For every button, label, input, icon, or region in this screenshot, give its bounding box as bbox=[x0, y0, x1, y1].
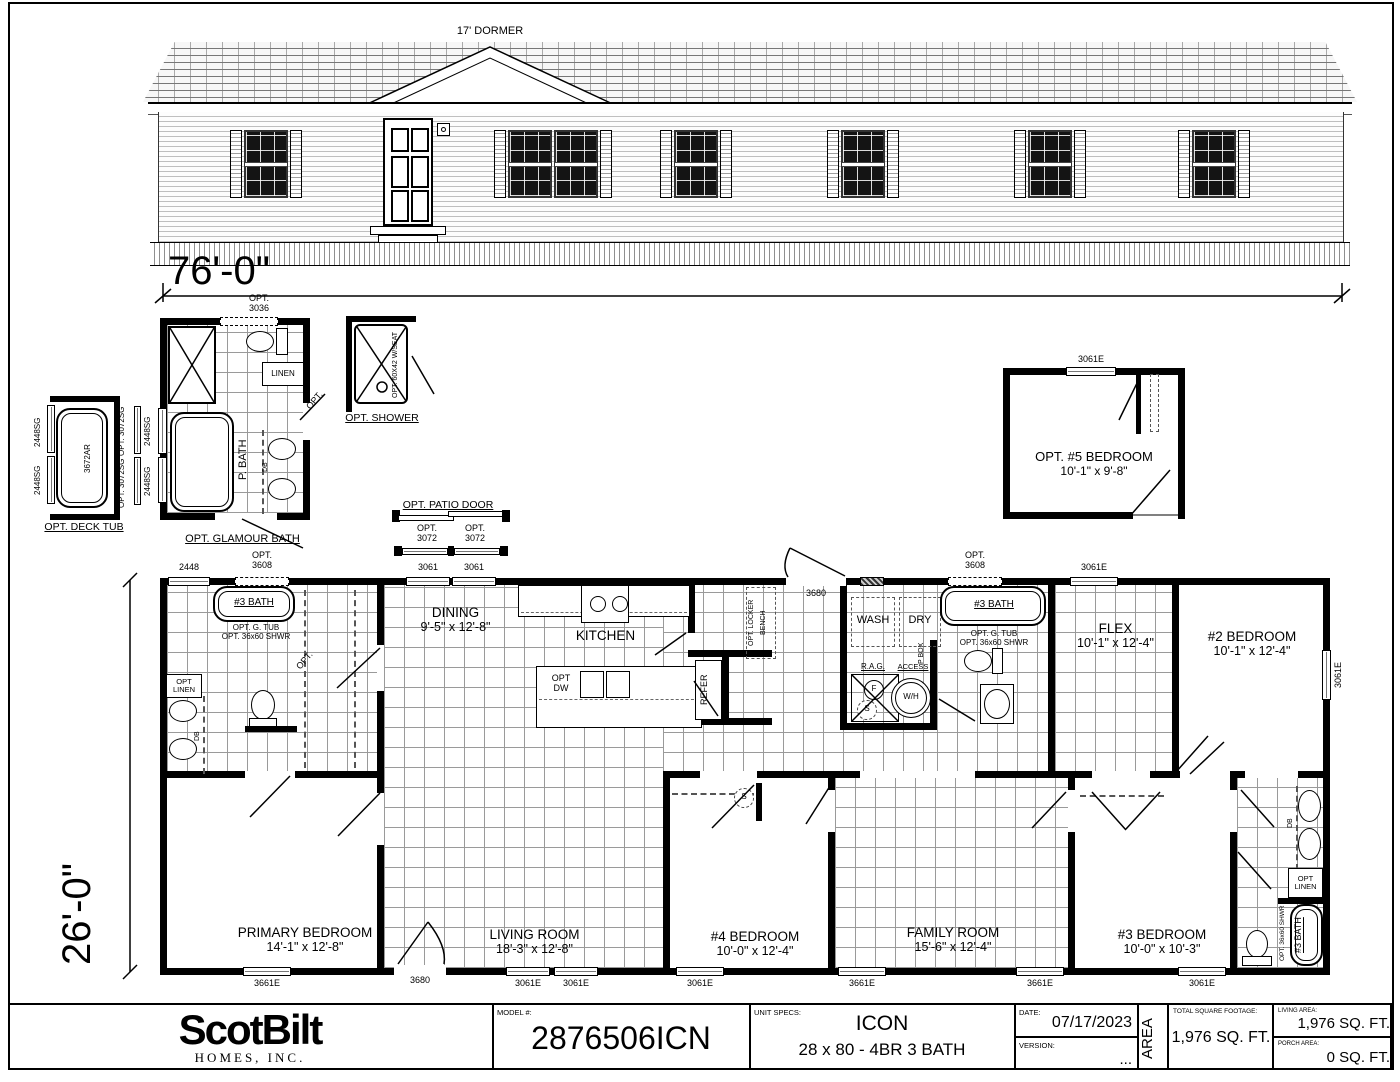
tub-option: OPT. 36x60 SHWR bbox=[206, 633, 306, 642]
width-dimension: 76'-0" bbox=[168, 250, 348, 293]
room-label: P. BATH bbox=[238, 428, 254, 492]
window-symbol bbox=[1322, 650, 1331, 700]
window-tag: 3061E bbox=[678, 979, 722, 989]
elevation-window bbox=[674, 130, 718, 198]
window-tag: 2448SG bbox=[144, 408, 156, 454]
specs-line1: ICON bbox=[752, 1013, 1012, 1036]
window-symbol bbox=[158, 457, 167, 503]
elevation-window bbox=[1028, 130, 1072, 198]
access-label: ACCESS bbox=[890, 663, 936, 671]
window-tag: 3661E bbox=[1018, 979, 1062, 989]
shutter bbox=[827, 130, 839, 198]
drawing-sheet: 17' DORMER 76'-0" 26'-0" bbox=[0, 0, 1400, 1082]
model-label: MODEL #: bbox=[497, 1008, 532, 1017]
door-tag: 3680 bbox=[396, 976, 444, 986]
window-tag: 3661E bbox=[840, 979, 884, 989]
double-bowl-tag: DB bbox=[1287, 812, 1296, 834]
room-label-kitchen: KITCHEN bbox=[558, 629, 653, 644]
elevation-window bbox=[508, 130, 552, 198]
toilet-bowl bbox=[251, 690, 275, 720]
shower-note: OPT. 60X42 W/SEAT bbox=[392, 328, 410, 402]
window-symbol bbox=[402, 548, 448, 555]
porch-label: PORCH AREA: bbox=[1278, 1041, 1319, 1047]
toilet-tank bbox=[992, 648, 1003, 674]
burner bbox=[590, 596, 606, 612]
shutter bbox=[1238, 130, 1250, 198]
elevation-window bbox=[841, 130, 885, 198]
double-bowl-tag: DB bbox=[194, 726, 203, 746]
window-tag: OPT. 3608 bbox=[245, 551, 279, 570]
closet-louver-door bbox=[1150, 374, 1159, 432]
room-label-flex: FLEX 10'-1" x 12'-4" bbox=[1058, 622, 1173, 650]
shutter bbox=[887, 130, 899, 198]
brand-sub: HOMES, INC. bbox=[100, 1051, 400, 1065]
model-number: 2876506ICN bbox=[496, 1021, 746, 1056]
specs-line2: 28 x 80 - 4BR 3 BATH bbox=[752, 1041, 1012, 1059]
locker-label: OPT. LOCKER bbox=[748, 590, 760, 656]
patio-door-panel bbox=[398, 515, 454, 521]
door-step bbox=[370, 226, 446, 235]
window-symbol bbox=[452, 577, 496, 586]
date-value: 07/17/2023 bbox=[1018, 1014, 1132, 1031]
window-symbol bbox=[838, 967, 886, 976]
sheet-border-right bbox=[1392, 2, 1394, 1070]
sink bbox=[1298, 828, 1321, 860]
porch-light bbox=[437, 123, 450, 136]
bench-label: BENCH bbox=[760, 596, 772, 650]
window-tag: 3061E bbox=[548, 979, 604, 989]
sink bbox=[268, 438, 296, 460]
window-symbol bbox=[1178, 967, 1226, 976]
closet-shelf bbox=[1080, 795, 1164, 797]
depth-dimension: 26'-0" bbox=[56, 846, 104, 982]
shutter bbox=[230, 130, 242, 198]
room-label-bed3: #3 BEDROOM 10'-0" x 10'-3" bbox=[1096, 928, 1228, 956]
room-name: OPT. #5 BEDROOM bbox=[1018, 450, 1170, 464]
smoke-circle: S bbox=[857, 700, 877, 720]
opt-glamour-bath-label: OPT. GLAMOUR BATH bbox=[170, 534, 315, 546]
shutter bbox=[1074, 130, 1086, 198]
bath-name: #3 BATH bbox=[956, 600, 1032, 611]
washer: WASH bbox=[851, 597, 895, 647]
burner bbox=[612, 596, 628, 612]
linen-cabinet: LINEN bbox=[262, 362, 304, 386]
living-label: LIVING AREA: bbox=[1278, 1008, 1317, 1014]
window-tag: 2448SG bbox=[34, 458, 46, 502]
elevation-window bbox=[554, 130, 598, 198]
double-bowl-tag: DB bbox=[262, 458, 271, 476]
opt-window-symbol bbox=[948, 577, 1002, 586]
window-symbol bbox=[158, 408, 167, 454]
roof bbox=[143, 42, 1357, 102]
window-tag: 3061E bbox=[1334, 648, 1346, 702]
window-tag: OPT. 3072SG bbox=[118, 406, 131, 456]
entry-door-opening bbox=[786, 577, 846, 586]
window-symbol bbox=[47, 405, 55, 453]
closet-rod bbox=[354, 590, 356, 768]
room-label-living: LIVING ROOM 18'-3" x 12'-8" bbox=[452, 928, 617, 956]
window-tag: 3661E bbox=[245, 979, 289, 989]
window-symbol bbox=[454, 548, 500, 555]
toilet-bowl bbox=[246, 331, 274, 352]
room-label-bed4: #4 BEDROOM 10'-0" x 12'-4" bbox=[686, 930, 824, 958]
opt-window-symbol bbox=[220, 317, 278, 326]
living-value: 1,976 SQ. FT. bbox=[1276, 1016, 1390, 1032]
room-label-primary: PRIMARY BEDROOM 14'-1" x 12'-8" bbox=[195, 926, 415, 954]
dishwasher-label: OPT DW bbox=[544, 674, 578, 693]
window-tag: 2448SG bbox=[34, 410, 46, 454]
opt-patio-door-label: OPT. PATIO DOOR bbox=[400, 500, 496, 511]
window-tag: OPT. 3072 bbox=[408, 524, 446, 543]
toilet-tank bbox=[276, 328, 288, 355]
window-tag: OPT. 3608 bbox=[958, 551, 992, 570]
glamour-tub bbox=[170, 412, 234, 512]
shelf-circle: S bbox=[734, 788, 754, 808]
shower-option: OPT. 36x60 SHWR bbox=[1279, 900, 1289, 966]
area-label: AREA bbox=[1140, 1011, 1164, 1066]
closet-rod bbox=[304, 590, 306, 768]
window-symbol bbox=[1070, 577, 1118, 586]
room-label-dining: DINING 9'-5" x 12'-8" bbox=[398, 606, 513, 634]
patio-door-panel bbox=[448, 511, 504, 517]
window-tag: 2448 bbox=[160, 563, 218, 573]
opt-deck-tub-label: OPT. DECK TUB bbox=[34, 522, 134, 533]
front-door bbox=[383, 118, 433, 226]
bath-name: #3 BATH bbox=[1294, 906, 1320, 964]
window-tag: OPT. 3072 bbox=[456, 524, 494, 543]
furnace-circle: F bbox=[864, 680, 884, 700]
sink bbox=[169, 700, 197, 722]
room-label-family: FAMILY ROOM 15'-6" x 12'-4" bbox=[882, 926, 1024, 954]
toilet-bowl bbox=[964, 650, 992, 672]
window-symbol bbox=[406, 577, 450, 586]
deck-tub bbox=[56, 408, 108, 508]
window-tag: 2448SG bbox=[144, 458, 156, 504]
sheet-border-left bbox=[8, 2, 10, 1070]
refrigerator-label: REFER bbox=[700, 664, 716, 716]
window-symbol bbox=[676, 967, 724, 976]
sink bbox=[268, 478, 296, 500]
linen-cabinet: OPT LINEN bbox=[166, 674, 202, 698]
tub-model: 3672AR bbox=[84, 434, 96, 484]
window-symbol bbox=[134, 406, 141, 454]
window-tag: 3061E bbox=[1072, 563, 1116, 573]
linen-cabinet: OPT LINEN bbox=[1288, 868, 1323, 898]
version-value: ... bbox=[1018, 1052, 1132, 1068]
window-tag: 3061 bbox=[446, 563, 502, 573]
shutter bbox=[290, 130, 302, 198]
sink-basin bbox=[580, 671, 604, 698]
shutter bbox=[494, 130, 506, 198]
shutter bbox=[1014, 130, 1026, 198]
elevation-body bbox=[158, 112, 1344, 242]
sink bbox=[169, 738, 197, 760]
elevation-window bbox=[244, 130, 288, 198]
toilet-tank bbox=[1242, 956, 1272, 966]
shutter bbox=[600, 130, 612, 198]
total-label: TOTAL SQUARE FOOTAGE: bbox=[1173, 1008, 1257, 1015]
window-symbol bbox=[168, 577, 210, 586]
shutter bbox=[660, 130, 672, 198]
porch-value: 0 SQ. FT. bbox=[1276, 1050, 1390, 1066]
room-label-bed2: #2 BEDROOM 10'-1" x 12'-4" bbox=[1186, 630, 1318, 658]
window-symbol bbox=[243, 967, 291, 976]
room-dims: 10'-1" x 9'-8" bbox=[1018, 465, 1170, 478]
window-symbol bbox=[1066, 367, 1116, 376]
bath-name: #3 BATH bbox=[218, 598, 290, 609]
window-symbol bbox=[506, 967, 550, 976]
water-heater-inner: W/H bbox=[895, 682, 927, 714]
window-symbol bbox=[554, 967, 598, 976]
tub-option: OPT. 36x60 SHWR bbox=[942, 639, 1046, 648]
window-symbol bbox=[134, 457, 141, 505]
window-symbol bbox=[47, 456, 55, 504]
window-tag: OPT. 3036 bbox=[238, 294, 280, 313]
opt-shower-label: OPT. SHOWER bbox=[342, 413, 422, 424]
toilet-bowl bbox=[1246, 930, 1268, 958]
opt-window-symbol bbox=[235, 577, 289, 586]
window-tag: OPT. 3072SG bbox=[118, 458, 131, 508]
shutter bbox=[720, 130, 732, 198]
door-tag: 3680 bbox=[792, 589, 840, 599]
window-tag: 3061E bbox=[1180, 979, 1224, 989]
dormer-label: 17' DORMER bbox=[430, 26, 550, 38]
glamour-shower bbox=[168, 326, 216, 404]
version-label: VERSION: bbox=[1019, 1041, 1055, 1050]
sheet-border-top bbox=[8, 2, 1394, 4]
flex-floor bbox=[1055, 585, 1175, 773]
brand-logo: ScotBilt bbox=[100, 1007, 400, 1052]
sink bbox=[1298, 790, 1321, 822]
title-block: ScotBilt HOMES, INC. MODEL #: 2876506ICN… bbox=[8, 1003, 1392, 1070]
sink-basin bbox=[606, 671, 630, 698]
window-symbol bbox=[1016, 967, 1064, 976]
dryer-vent bbox=[860, 577, 884, 586]
shutter bbox=[1178, 130, 1190, 198]
window-tag: 3061E bbox=[1068, 355, 1114, 365]
sink bbox=[984, 689, 1010, 719]
total-value: 1,976 SQ. FT. bbox=[1170, 1029, 1272, 1046]
elevation-window bbox=[1192, 130, 1236, 198]
